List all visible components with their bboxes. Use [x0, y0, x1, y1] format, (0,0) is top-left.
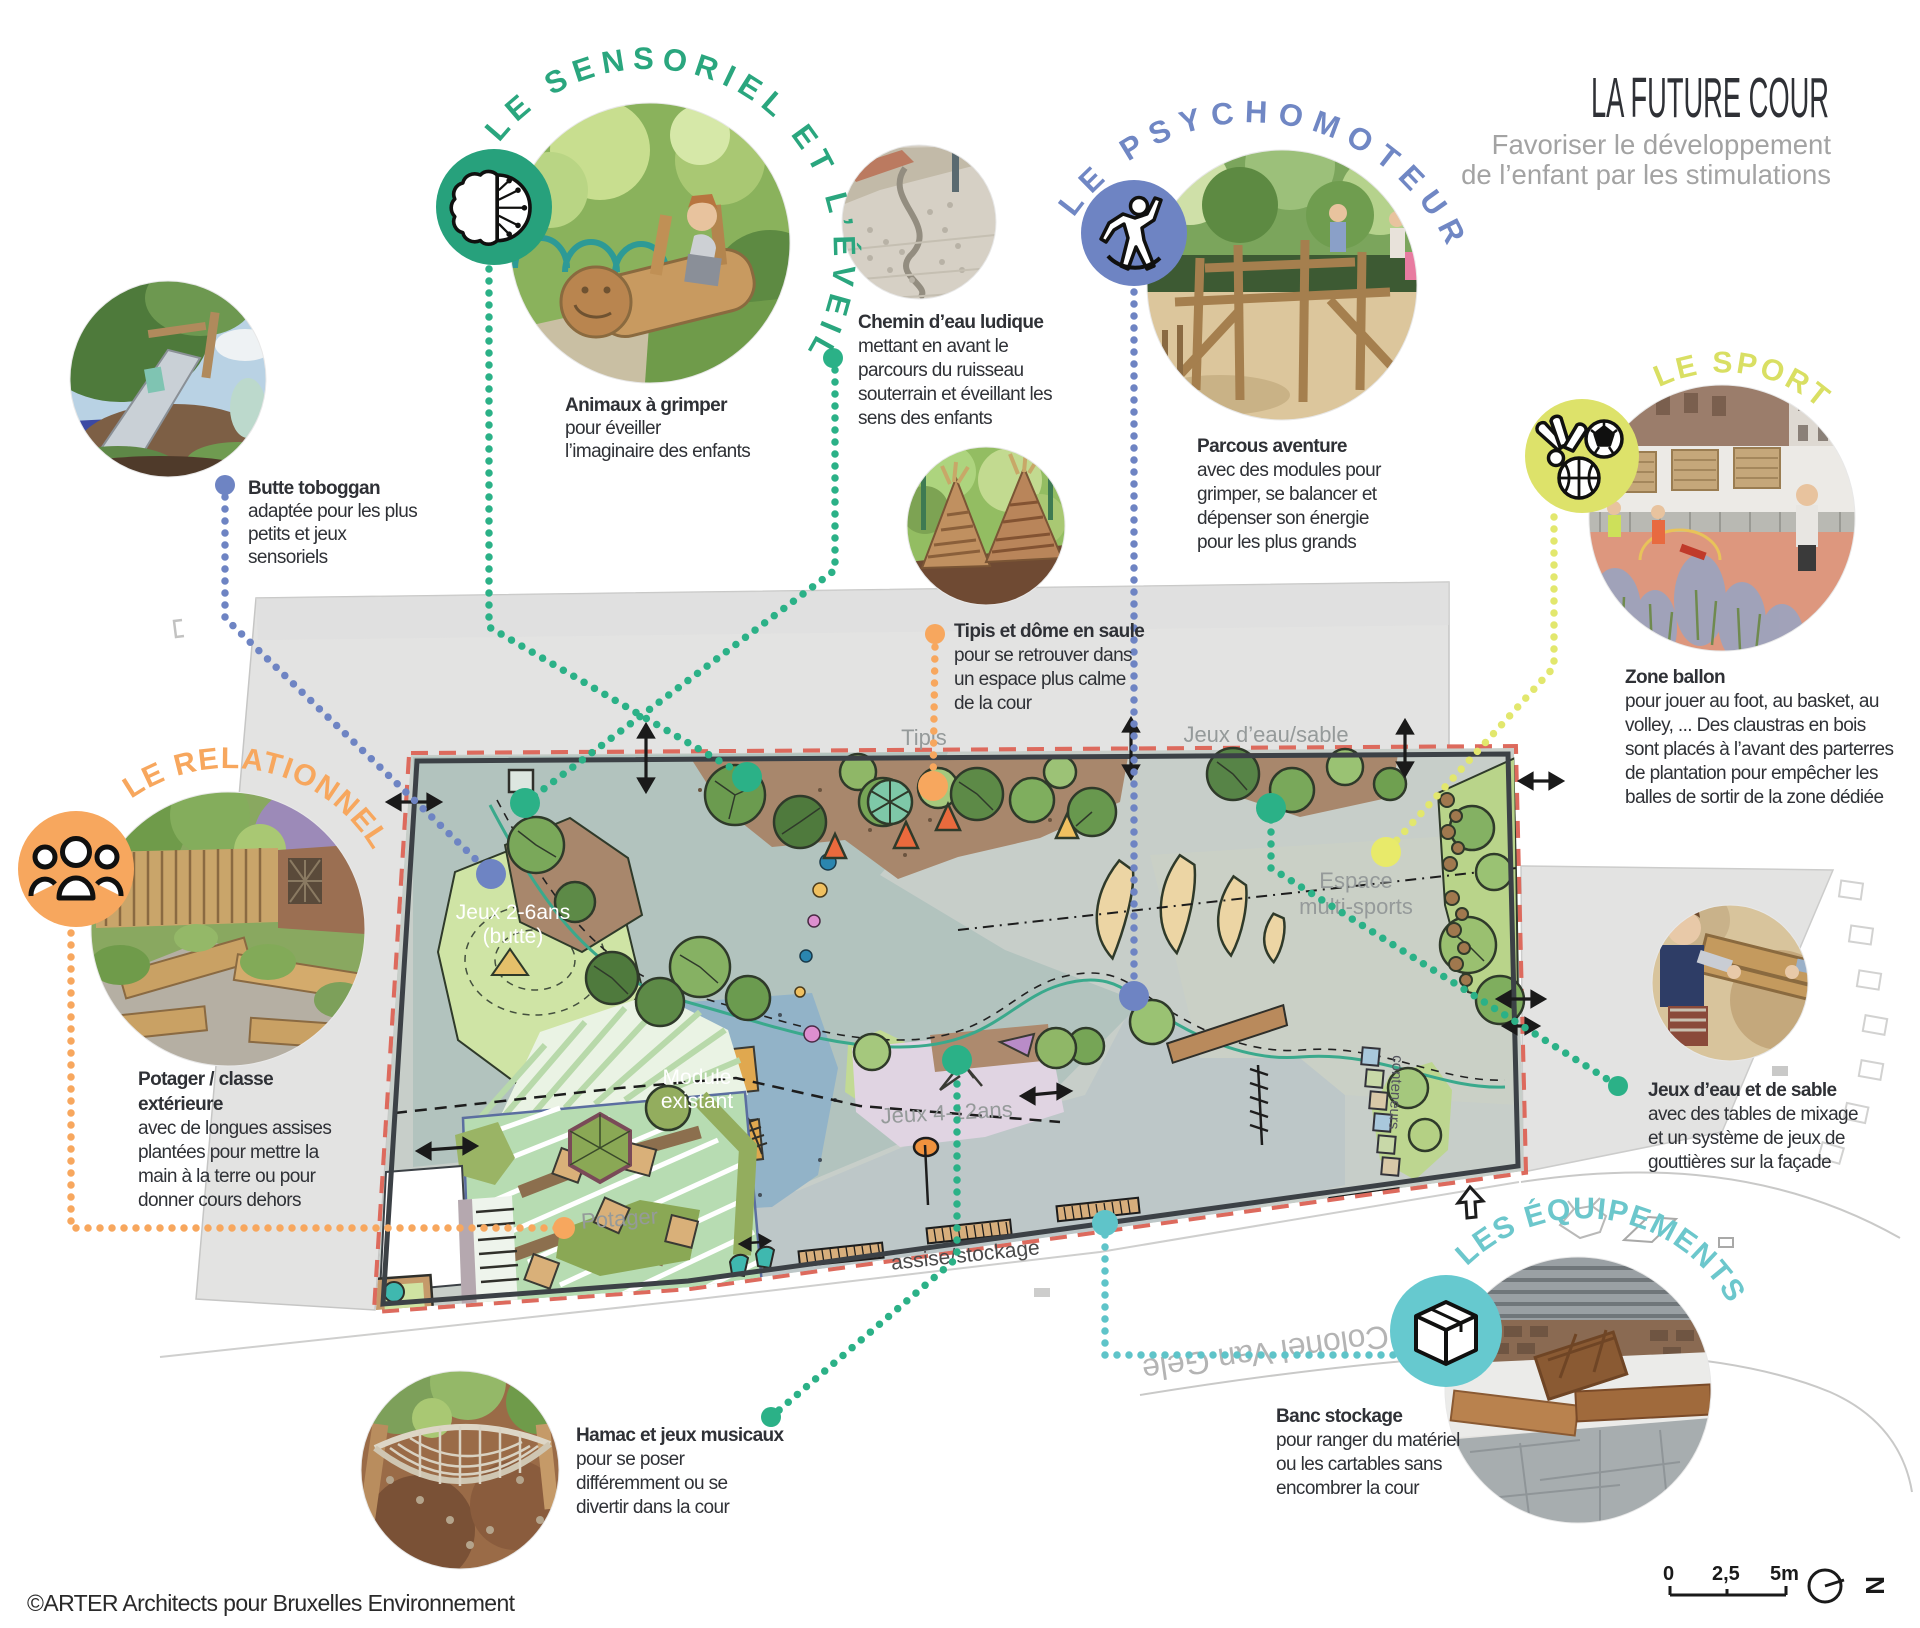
svg-text:grimper, se balancer et: grimper, se balancer et: [1197, 484, 1378, 505]
svg-text:pour se retrouver dans: pour se retrouver dans: [954, 645, 1132, 666]
svg-text:Butte toboggan: Butte toboggan: [248, 478, 380, 499]
svg-text:Tipis et dôme en saule: Tipis et dôme en saule: [954, 621, 1144, 642]
svg-text:Hamac et jeux musicaux: Hamac et jeux musicaux: [576, 1425, 785, 1446]
svg-text:différemment ou se: différemment ou se: [576, 1473, 728, 1494]
svg-text:avec des tables de mixage: avec des tables de mixage: [1648, 1104, 1858, 1125]
svg-text:dépenser son énergie: dépenser son énergie: [1197, 508, 1369, 529]
svg-text:Animaux à grimper: Animaux à grimper: [565, 395, 728, 416]
svg-text:petits et jeux: petits et jeux: [248, 524, 347, 545]
svg-text:encombrer la cour: encombrer la cour: [1276, 1478, 1420, 1499]
svg-text:0: 0: [1663, 1563, 1674, 1585]
svg-text:pour éveiller: pour éveiller: [565, 418, 662, 439]
svg-text:l’imaginaire des enfants: l’imaginaire des enfants: [565, 441, 750, 462]
svg-text:avec de longues assises: avec de longues assises: [138, 1118, 331, 1139]
svg-text:balles de sortir de la zone dé: balles de sortir de la zone dédiée: [1625, 787, 1883, 808]
svg-text:pour se poser: pour se poser: [576, 1449, 686, 1470]
svg-text:N: N: [1860, 1576, 1890, 1595]
svg-text:et un système de jeux de: et un système de jeux de: [1648, 1128, 1845, 1149]
svg-text:de plantation pour empêcher le: de plantation pour empêcher les: [1625, 763, 1878, 784]
svg-text:Parcous aventure: Parcous aventure: [1197, 436, 1347, 457]
svg-text:extérieure: extérieure: [138, 1094, 223, 1115]
svg-text:Chemin d’eau ludique: Chemin d’eau ludique: [858, 312, 1043, 333]
svg-text:Jeux 2-6ans: Jeux 2-6ans: [456, 901, 570, 924]
svg-text:sont placés à l’avant des part: sont placés à l’avant des parterres: [1625, 739, 1893, 760]
svg-text:main à la terre ou pour: main à la terre ou pour: [138, 1166, 317, 1187]
svg-text:multi-sports: multi-sports: [1299, 894, 1413, 919]
svg-text:divertir dans la cour: divertir dans la cour: [576, 1497, 730, 1518]
svg-text:LA FUTURE COUR: LA FUTURE COUR: [1591, 66, 1829, 130]
svg-text:sens des enfants: sens des enfants: [858, 408, 992, 429]
svg-text:©ARTER Architects pour Bruxell: ©ARTER Architects pour Bruxelles Environ…: [27, 1590, 516, 1616]
svg-text:Jeux d’eau/sable: Jeux d’eau/sable: [1183, 722, 1348, 747]
svg-text:2,5: 2,5: [1712, 1563, 1740, 1585]
svg-text:souterrain et éveillant les: souterrain et éveillant les: [858, 384, 1052, 405]
svg-text:de l’enfant par les stimulatio: de l’enfant par les stimulations: [1461, 159, 1831, 190]
svg-text:Jeux d’eau et de sable: Jeux d’eau et de sable: [1648, 1080, 1837, 1101]
svg-text:pour jouer au foot, au basket,: pour jouer au foot, au basket, au: [1625, 691, 1879, 712]
svg-text:Favoriser le développement: Favoriser le développement: [1492, 129, 1832, 160]
svg-text:gouttières sur la façade: gouttières sur la façade: [1648, 1152, 1831, 1173]
svg-text:Tipis: Tipis: [901, 725, 947, 750]
svg-text:(butte): (butte): [483, 925, 544, 948]
svg-text:de la cour: de la cour: [954, 693, 1033, 714]
svg-text:avec des modules pour: avec des modules pour: [1197, 460, 1382, 481]
svg-text:ou les cartables sans: ou les cartables sans: [1276, 1454, 1442, 1475]
svg-text:Zone ballon: Zone ballon: [1625, 667, 1725, 688]
svg-text:donner cours dehors: donner cours dehors: [138, 1190, 301, 1211]
svg-text:5m: 5m: [1770, 1563, 1799, 1585]
svg-text:parcours du ruisseau: parcours du ruisseau: [858, 360, 1023, 381]
svg-text:sensoriels: sensoriels: [248, 547, 328, 568]
svg-text:pour ranger du matériel: pour ranger du matériel: [1276, 1430, 1460, 1451]
svg-text:Potager / classe: Potager / classe: [138, 1069, 273, 1090]
svg-text:adaptée pour les plus: adaptée pour les plus: [248, 501, 417, 522]
svg-text:plantées pour mettre la: plantées pour mettre la: [138, 1142, 320, 1163]
svg-text:pour les plus grands: pour les plus grands: [1197, 532, 1356, 553]
svg-text:Banc stockage: Banc stockage: [1276, 1406, 1402, 1427]
svg-text:Espace: Espace: [1319, 868, 1392, 893]
svg-text:existant: existant: [661, 1090, 734, 1113]
svg-text:un espace plus calme: un espace plus calme: [954, 669, 1126, 690]
svg-text:volley, ... Des claustras en b: volley, ... Des claustras en bois: [1625, 715, 1866, 736]
svg-text:Module: Module: [663, 1066, 732, 1089]
svg-text:mettant en avant le: mettant en avant le: [858, 336, 1008, 357]
